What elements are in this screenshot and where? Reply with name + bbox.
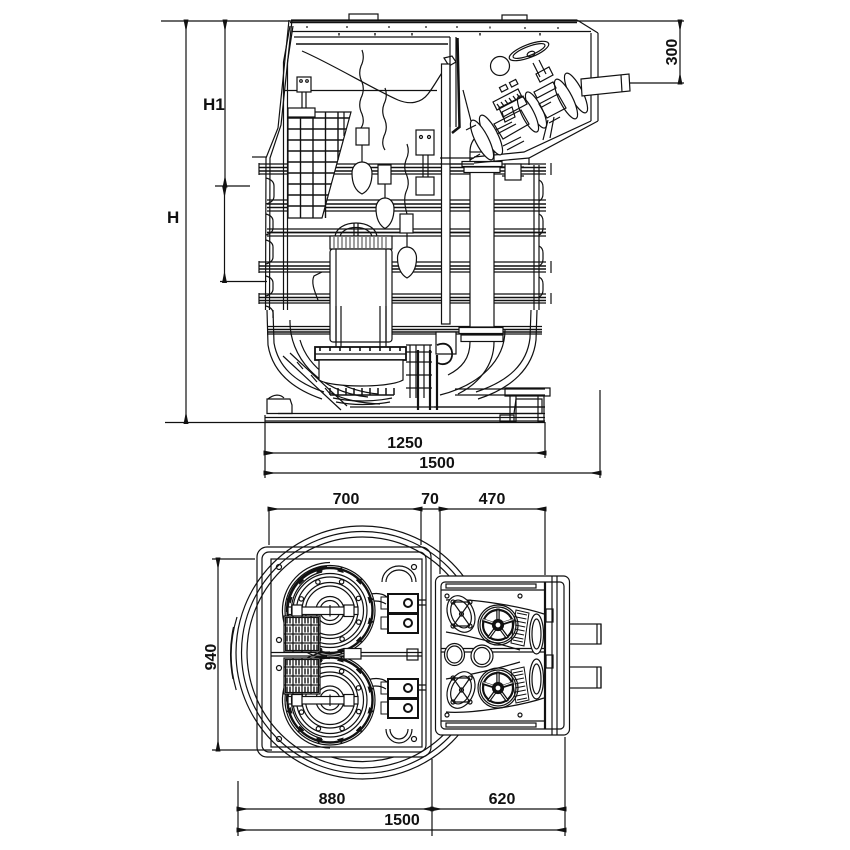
svg-text:620: 620 (489, 791, 516, 808)
svg-text:940: 940 (203, 644, 220, 671)
svg-text:H1: H1 (203, 95, 225, 114)
svg-text:1500: 1500 (384, 812, 420, 829)
svg-text:H: H (167, 208, 179, 227)
svg-text:880: 880 (319, 791, 346, 808)
svg-text:700: 700 (333, 491, 360, 508)
svg-text:470: 470 (479, 491, 506, 508)
svg-text:300: 300 (664, 39, 681, 66)
svg-text:1250: 1250 (387, 435, 423, 452)
svg-text:70: 70 (421, 491, 439, 508)
svg-text:1500: 1500 (419, 455, 455, 472)
